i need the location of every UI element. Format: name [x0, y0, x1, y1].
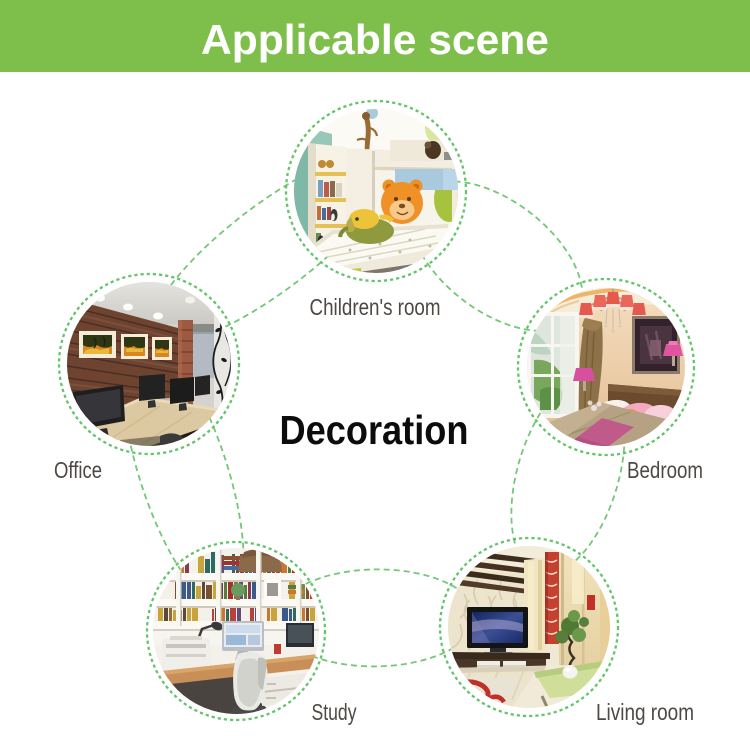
svg-text:Bedroom: Bedroom: [627, 457, 703, 483]
svg-text:Study: Study: [312, 699, 357, 725]
svg-text:Decoration: Decoration: [280, 407, 469, 453]
svg-text:Office: Office: [54, 457, 102, 483]
svg-text:Applicable scene: Applicable scene: [201, 16, 549, 63]
svg-text:Living room: Living room: [596, 699, 694, 725]
svg-text:Children's room: Children's room: [310, 294, 441, 320]
